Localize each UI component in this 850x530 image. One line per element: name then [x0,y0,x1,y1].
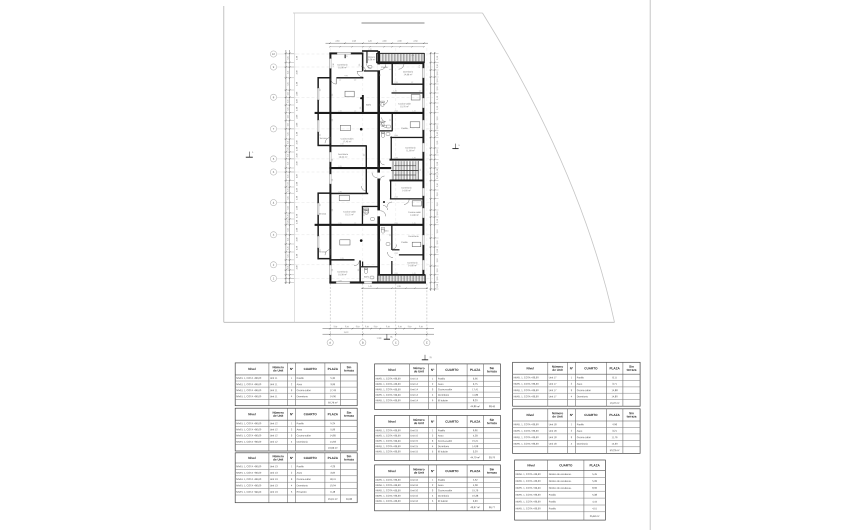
svg-text:1,9: 1,9 [358,269,360,271]
svg-text:2,9: 2,9 [359,64,361,66]
svg-text:Unit 14: Unit 14 [410,378,418,381]
svg-text:1,45: 1,45 [287,175,289,178]
svg-text:17,43 m²: 17,43 m² [343,140,352,143]
svg-text:1,45: 1,45 [287,162,289,165]
svg-text:NIVEL 1, COTA +86,60: NIVEL 1, COTA +86,60 [514,423,540,426]
svg-text:Terraza: Terraza [319,250,327,253]
svg-text:2,45: 2,45 [340,143,343,145]
svg-text:PLAZA: PLAZA [328,456,339,460]
svg-text:PLAZA: PLAZA [470,469,481,473]
svg-text:44,79 m²: 44,79 m² [470,456,480,459]
svg-text:11,76: 11,76 [612,436,619,439]
svg-text:2,98: 2,98 [394,157,397,159]
svg-text:Unit 16: Unit 16 [410,479,418,482]
svg-text:Cocina-salón: Cocina-salón [438,388,453,391]
svg-text:14,60 m²: 14,60 m² [402,189,411,192]
svg-text:2,9: 2,9 [419,65,421,67]
svg-text:Dormitorio: Dormitorio [337,270,348,273]
svg-text:PLAZA: PLAZA [328,367,339,371]
svg-text:Pasillo: Pasillo [381,67,388,69]
svg-text:NIVEL 1, COTA +86,60: NIVEL 1, COTA +86,60 [516,494,542,497]
svg-text:Unit 17: Unit 17 [549,395,557,398]
svg-text:1,45: 1,45 [287,214,289,217]
svg-text:Unit 16: Unit 16 [410,484,418,487]
svg-text:14,93: 14,93 [330,441,337,444]
svg-text:NIVEL 1, COTA +86,60: NIVEL 1, COTA +86,60 [376,500,402,503]
svg-text:NIVEL 1, COTA +86,60: NIVEL 1, COTA +86,60 [376,394,402,397]
svg-text:36,77: 36,77 [489,506,496,509]
svg-text:NIVEL 1, COTA +86,60: NIVEL 1, COTA +86,60 [376,429,402,432]
svg-text:Unit 11: Unit 11 [270,389,278,392]
svg-text:3,08 m²: 3,08 m² [368,58,376,61]
svg-text:Dormitorio: Dormitorio [338,153,349,156]
svg-text:Cocina-salón: Cocina-salón [398,103,412,105]
svg-text:19,93 m²: 19,93 m² [328,447,338,450]
svg-text:Unit 11: Unit 11 [270,395,278,398]
svg-text:3,10: 3,10 [398,326,402,328]
svg-text:Unit 12: Unit 12 [270,422,278,425]
svg-text:Terraza: Terraza [319,137,327,140]
svg-text:Nivel: Nivel [248,456,256,460]
svg-text:1,2: 1,2 [339,79,341,81]
svg-text:Terraza: Terraza [319,212,327,215]
svg-text:34,68: 34,68 [346,498,353,501]
svg-text:Aseo: Aseo [383,229,389,232]
svg-text:Unit 12: Unit 12 [270,441,278,444]
svg-text:PLAZA: PLAZA [609,413,620,417]
svg-text:14,80: 14,80 [612,395,619,398]
svg-text:Unit 14: Unit 14 [410,388,418,391]
svg-text:Cocina-salón: Cocina-salón [343,211,357,213]
svg-text:6,36: 6,36 [473,429,478,432]
svg-text:2,98: 2,98 [394,253,397,255]
svg-text:4,29: 4,29 [330,465,335,468]
svg-text:Baño: Baño [366,103,372,106]
svg-text:38,49: 38,49 [489,405,496,408]
svg-text:NIVEL 1, COTA +86,60: NIVEL 1, COTA +86,60 [376,435,402,438]
svg-text:10,04 m²: 10,04 m² [339,156,348,159]
svg-text:3,10: 3,10 [365,326,369,328]
svg-text:14,98: 14,98 [472,445,479,448]
svg-text:PLAZA: PLAZA [609,366,620,370]
svg-text:NIVEL 1, COTA +86,60: NIVEL 1, COTA +86,60 [236,478,262,481]
svg-text:2,98: 2,98 [410,280,413,282]
svg-text:3,96: 3,96 [330,383,335,386]
svg-text:10,06 m²: 10,06 m² [338,66,347,69]
svg-text:NIVEL 1, COTA +86,60: NIVEL 1, COTA +86,60 [376,495,402,498]
svg-text:2,45: 2,45 [338,191,341,193]
svg-text:El balcón: El balcón [438,500,449,503]
svg-text:1,45: 1,45 [412,223,415,225]
svg-text:NIVEL 1, COTA +86,60: NIVEL 1, COTA +86,60 [376,383,402,386]
svg-text:NIVEL 1, COTA +86,60: NIVEL 1, COTA +86,60 [236,434,262,437]
svg-text:Nivel: Nivel [388,420,396,424]
svg-text:2,98: 2,98 [394,135,397,137]
svg-text:NIVEL 1, COTA +86,60: NIVEL 1, COTA +86,60 [514,443,540,446]
svg-text:44,86 m²: 44,86 m² [470,405,480,408]
svg-text:10,38: 10,38 [472,495,479,498]
svg-text:4,99: 4,99 [344,56,347,58]
svg-text:4,99: 4,99 [338,280,341,282]
svg-text:2,9: 2,9 [360,107,362,109]
svg-text:Unit 13: Unit 13 [270,478,278,481]
svg-text:Dormitorio: Dormitorio [408,235,419,238]
svg-text:Dormitorio: Dormitorio [337,63,348,66]
svg-text:NIVEL 1, COTA +86,60: NIVEL 1, COTA +86,60 [236,484,262,487]
svg-text:NIVEL 1, COTA +86,60: NIVEL 1, COTA +86,60 [376,484,402,487]
svg-text:2,98: 2,98 [394,273,397,275]
svg-text:4,28: 4,28 [473,434,478,437]
svg-text:Nivel: Nivel [527,463,535,467]
svg-text:2,45: 2,45 [338,223,341,225]
svg-text:6,48: 6,48 [330,491,335,494]
svg-text:NIVEL 1, COTA +86,60: NIVEL 1, COTA +86,60 [516,487,542,490]
svg-text:Dormitorio: Dormitorio [407,261,418,264]
svg-text:1,2: 1,2 [390,234,392,236]
svg-text:15,21 m²: 15,21 m² [345,213,354,216]
svg-text:Nivel: Nivel [526,413,534,417]
svg-text:Pasillo: Pasillo [401,242,408,244]
svg-text:terraza: terraza [487,369,497,373]
svg-text:Unit 11: Unit 11 [270,383,278,386]
svg-text:de Unit: de Unit [414,471,424,475]
svg-text:Unit 18: Unit 18 [549,423,557,426]
svg-text:1,45: 1,45 [287,107,289,110]
svg-text:PLAZA: PLAZA [470,368,481,372]
svg-text:Unit 14: Unit 14 [410,394,418,397]
svg-text:Aseo: Aseo [297,428,303,431]
svg-text:Unit 17: Unit 17 [549,376,557,379]
svg-text:10,22 m²: 10,22 m² [610,402,620,405]
svg-text:NIVEL 1, COTA +86,60: NIVEL 1, COTA +86,60 [236,472,262,475]
svg-text:0,9: 0,9 [389,69,391,71]
svg-text:1,45: 1,45 [287,100,289,103]
svg-text:Nivel: Nivel [248,367,256,371]
svg-text:Núcleo de escaleras.: Núcleo de escaleras. [549,480,572,483]
svg-text:Unit 14: Unit 14 [410,383,418,386]
svg-text:NIVEL 1, COTA +86,60: NIVEL 1, COTA +86,60 [236,422,262,425]
svg-text:NIVEL 1, COTA +86,60: NIVEL 1, COTA +86,60 [376,450,402,453]
svg-text:2,98: 2,98 [394,196,397,198]
svg-text:Aseo: Aseo [297,383,303,386]
svg-text:Unit 14: Unit 14 [410,399,418,402]
svg-text:Unit 13: Unit 13 [270,472,278,475]
svg-text:3,60: 3,60 [473,500,478,503]
svg-text:NIVEL 1, COTA +86,60: NIVEL 1, COTA +86,60 [514,395,540,398]
svg-text:8,06: 8,06 [592,487,597,490]
svg-text:de Unit: de Unit [552,414,562,418]
svg-text:1,45: 1,45 [412,110,415,112]
svg-text:5,45: 5,45 [592,473,597,476]
svg-text:5,38: 5,38 [592,494,597,497]
svg-text:1,2: 1,2 [320,134,322,136]
svg-text:1,45: 1,45 [287,92,289,95]
svg-text:10,04: 10,04 [330,484,337,487]
svg-text:3,20: 3,20 [473,450,478,453]
svg-text:Pasillo: Pasillo [438,429,446,432]
svg-text:Aseo: Aseo [382,124,388,127]
svg-text:8,11: 8,11 [612,376,617,379]
svg-text:CUARTO: CUARTO [584,366,598,370]
svg-text:1,45: 1,45 [287,238,289,241]
svg-text:Unit 16: Unit 16 [410,500,418,503]
svg-text:1,45: 1,45 [287,254,289,257]
svg-text:NIVEL 1, COTA +86,60: NIVEL 1, COTA +86,60 [516,501,542,504]
svg-text:Aseo: Aseo [438,484,444,487]
svg-text:Pasillo: Pasillo [577,423,585,426]
svg-text:15,76: 15,76 [472,489,479,492]
svg-text:Aseo: Aseo [297,472,303,475]
svg-text:NIVEL 1, COTA +86,60: NIVEL 1, COTA +86,60 [236,389,262,392]
svg-text:NIVEL 1, COTA +86,60: NIVEL 1, COTA +86,60 [236,441,262,444]
svg-text:2,9: 2,9 [380,104,382,106]
svg-text:3,75: 3,75 [473,383,478,386]
svg-text:18,41: 18,41 [330,478,337,481]
svg-text:17,41: 17,41 [472,388,479,391]
svg-text:Núcleo de escaleras.: Núcleo de escaleras. [549,487,572,490]
svg-text:Unit 15: Unit 15 [410,435,418,438]
svg-text:CUARTO: CUARTO [445,469,459,473]
svg-text:Nivel: Nivel [388,469,396,473]
svg-text:NIVEL 1, COTA +86,60: NIVEL 1, COTA +86,60 [236,377,262,380]
svg-text:Dormitorio: Dormitorio [297,441,309,444]
svg-text:Unit 18: Unit 18 [549,443,557,446]
svg-text:Cocina-salón: Cocina-salón [297,478,312,481]
svg-text:1,45: 1,45 [287,182,289,185]
svg-text:Unit 15: Unit 15 [410,429,418,432]
svg-text:4,08: 4,08 [473,484,478,487]
svg-text:NIVEL 1, COTA +86,60: NIVEL 1, COTA +86,60 [514,383,540,386]
svg-text:NIVEL 1, COTA +86,60: NIVEL 1, COTA +86,60 [376,479,402,482]
svg-text:3,10: 3,10 [386,326,390,328]
svg-text:3,10: 3,10 [419,326,423,328]
svg-text:3,1: 3,1 [332,119,334,121]
svg-text:2,45: 2,45 [340,258,343,260]
svg-text:1,9: 1,9 [364,214,366,216]
svg-text:Unit 18: Unit 18 [549,430,557,433]
svg-text:11,89: 11,89 [472,394,479,397]
svg-text:PLAZA: PLAZA [328,412,339,416]
svg-text:A: A [329,341,331,345]
svg-text:NIVEL 1, COTA +86,60: NIVEL 1, COTA +86,60 [376,489,402,492]
svg-text:Dormitorio: Dormitorio [438,394,450,397]
svg-text:1,2: 1,2 [380,74,382,76]
svg-text:de Unit: de Unit [552,368,562,372]
svg-text:NIVEL 1, COTA +86,60: NIVEL 1, COTA +86,60 [514,376,540,379]
svg-text:1,2: 1,2 [411,82,413,84]
svg-text:PLAZA: PLAZA [589,463,600,467]
svg-text:NIVEL 1, COTA +86,60: NIVEL 1, COTA +86,60 [236,383,262,386]
svg-text:1,45: 1,45 [287,123,289,126]
svg-text:Dormitorio: Dormitorio [403,70,414,73]
svg-text:17,60: 17,60 [377,338,382,340]
svg-text:Cocina-salón: Cocina-salón [408,212,422,214]
svg-text:terraza: terraza [627,414,637,418]
svg-text:1,2: 1,2 [320,89,322,91]
svg-text:NIVEL 1, COTA +86,60: NIVEL 1, COTA +86,60 [236,465,262,468]
svg-text:1,45: 1,45 [368,286,372,288]
svg-text:3,10: 3,10 [345,326,349,328]
svg-text:3,10: 3,10 [333,63,335,66]
svg-text:2,98: 2,98 [394,110,397,112]
svg-text:El balcón: El balcón [438,399,449,402]
svg-text:PLAZA: PLAZA [470,420,481,424]
svg-text:Nivel: Nivel [526,366,534,370]
svg-text:Unit 15: Unit 15 [410,450,418,453]
svg-text:E: E [426,341,428,345]
svg-text:1,45: 1,45 [412,273,415,275]
svg-text:NIVEL 1, COTA +86,60: NIVEL 1, COTA +86,60 [376,378,402,381]
svg-text:de Unit: de Unit [273,457,283,461]
svg-text:NIVEL 1, COTA +86,60: NIVEL 1, COTA +86,60 [516,507,542,510]
svg-text:NIVEL 1, COTA +86,60: NIVEL 1, COTA +86,60 [516,480,542,483]
svg-text:14,98 m²: 14,98 m² [410,214,419,217]
svg-text:1,45: 1,45 [287,147,289,150]
svg-text:1,45: 1,45 [287,56,289,59]
svg-text:Pasillo: Pasillo [438,378,446,381]
svg-text:2,98: 2,98 [394,223,397,225]
svg-text:2,95: 2,95 [397,286,401,288]
svg-text:Dormitorio: Dormitorio [438,445,450,448]
svg-text:3,71: 3,71 [612,383,617,386]
svg-text:0,9: 0,9 [394,61,396,63]
svg-text:CUARTO: CUARTO [584,413,598,417]
svg-text:3,1: 3,1 [332,209,334,211]
svg-text:1,45: 1,45 [287,141,289,144]
svg-text:Pasillo: Pasillo [577,376,585,379]
svg-text:25,84 m²: 25,84 m² [590,515,600,518]
svg-text:Dormitorio: Dormitorio [577,395,589,398]
svg-text:2,9: 2,9 [420,169,422,171]
svg-text:1,45: 1,45 [287,82,289,85]
svg-text:1,45: 1,45 [287,188,289,191]
svg-text:CUARTO: CUARTO [559,463,573,467]
svg-text:4,44: 4,44 [592,500,597,503]
svg-text:terraza: terraza [344,414,354,418]
svg-text:45,61 m²: 45,61 m² [328,498,338,501]
svg-text:1,45: 1,45 [412,157,415,159]
svg-text:NIVEL 1, COTA +86,60: NIVEL 1, COTA +86,60 [514,430,540,433]
svg-text:NIVEL 1, COTA +86,60: NIVEL 1, COTA +86,60 [236,428,262,431]
svg-text:1,2: 1,2 [320,204,322,206]
svg-text:15,76 m²: 15,76 m² [400,105,409,108]
svg-text:2,98: 2,98 [410,55,413,57]
svg-text:1,45: 1,45 [287,220,289,223]
svg-text:NIVEL 1, COTA +86,60: NIVEL 1, COTA +86,60 [376,399,402,402]
svg-text:terraza: terraza [627,368,637,372]
svg-text:NIVEL 1, COTA +86,60: NIVEL 1, COTA +86,60 [236,491,262,494]
svg-text:Aseo: Aseo [362,208,368,211]
svg-text:Cocina-salón: Cocina-salón [297,389,312,392]
svg-text:Unit 16: Unit 16 [410,495,418,498]
svg-text:El balcón: El balcón [438,450,449,453]
svg-text:El balcón: El balcón [297,491,308,494]
svg-text:Unit 18: Unit 18 [549,436,557,439]
svg-text:5,24: 5,24 [330,422,335,425]
svg-text:1,45: 1,45 [287,266,289,269]
svg-text:Cocina-salón: Cocina-salón [438,489,453,492]
svg-text:NIVEL 1, COTA +86,60: NIVEL 1, COTA +86,60 [516,473,542,476]
svg-text:10,38 m²: 10,38 m² [338,273,347,276]
svg-text:Unit 11: Unit 11 [270,377,278,380]
svg-text:4,52: 4,52 [473,479,478,482]
svg-text:14,60: 14,60 [612,443,619,446]
svg-text:Pasillo: Pasillo [549,507,557,510]
svg-text:Nivel: Nivel [248,412,256,416]
svg-text:1,45: 1,45 [287,132,289,135]
svg-text:terraza: terraza [344,368,354,372]
svg-text:1,9: 1,9 [364,154,366,156]
svg-text:15,21: 15,21 [472,440,479,443]
svg-text:NIVEL 1, COTA +86,60: NIVEL 1, COTA +86,60 [514,389,540,392]
svg-text:CUARTO: CUARTO [445,420,459,424]
svg-text:CUARTO: CUARTO [304,456,318,460]
svg-text:Unit 13: Unit 13 [270,465,278,468]
svg-text:2,98: 2,98 [394,82,397,84]
svg-text:1,45: 1,45 [287,71,289,74]
svg-text:1,2: 1,2 [377,166,379,168]
svg-text:Dormitorio: Dormitorio [401,186,412,189]
svg-text:1,45: 1,45 [287,154,289,157]
svg-text:4,58: 4,58 [612,423,617,426]
svg-text:Baño: Baño [364,275,370,278]
svg-text:3,10: 3,10 [408,326,412,328]
svg-text:Aseo: Aseo [438,435,444,438]
svg-text:3,10: 3,10 [356,326,360,328]
svg-text:Cocina-salón: Cocina-salón [341,138,355,140]
svg-text:10: 10 [272,52,275,56]
svg-text:2,45: 2,45 [338,166,341,168]
svg-text:Unit 12: Unit 12 [270,434,278,437]
svg-text:2,1: 2,1 [332,159,334,161]
svg-text:3,21: 3,21 [612,430,617,433]
svg-text:3,10: 3,10 [334,326,338,328]
svg-text:Cocina-salón: Cocina-salón [297,434,312,437]
svg-text:14,88 m²: 14,88 m² [404,73,413,76]
svg-text:Núcleo de escaleras.: Núcleo de escaleras. [549,473,572,476]
svg-text:Pasillo: Pasillo [549,501,557,504]
svg-text:CUARTO: CUARTO [445,368,459,372]
svg-text:2,9: 2,9 [332,94,334,96]
svg-text:2,9: 2,9 [380,239,382,241]
svg-text:1,2: 1,2 [354,110,356,112]
svg-text:Dormitorio: Dormitorio [297,484,309,487]
svg-text:CUARTO: CUARTO [304,412,318,416]
svg-text:1,45: 1,45 [287,206,289,209]
svg-text:de Unit: de Unit [414,369,424,373]
svg-text:Cocina-salón: Cocina-salón [577,436,592,439]
svg-text:11,89 m²: 11,89 m² [406,149,415,152]
svg-text:1,20: 1,20 [368,49,371,51]
svg-text:6,06: 6,06 [473,377,478,380]
svg-text:terraza: terraza [344,457,354,461]
svg-text:Aseo: Aseo [577,383,583,386]
svg-text:B: B [362,341,364,345]
svg-text:Dormitorio: Dormitorio [577,443,589,446]
svg-text:C: C [395,341,397,345]
svg-text:Dormitorio: Dormitorio [438,495,450,498]
svg-text:Cocina-salón: Cocina-salón [438,440,453,443]
svg-text:de Unit: de Unit [273,414,283,418]
svg-text:4,99: 4,99 [344,75,347,77]
svg-text:14,85: 14,85 [330,434,337,437]
svg-text:17,43: 17,43 [330,389,337,392]
svg-text:3,60: 3,60 [330,472,335,475]
svg-text:8,20: 8,20 [473,399,478,402]
svg-text:Unit 16: Unit 16 [410,489,418,492]
svg-text:2,45: 2,45 [338,110,341,112]
svg-text:Pasillo: Pasillo [549,494,557,497]
